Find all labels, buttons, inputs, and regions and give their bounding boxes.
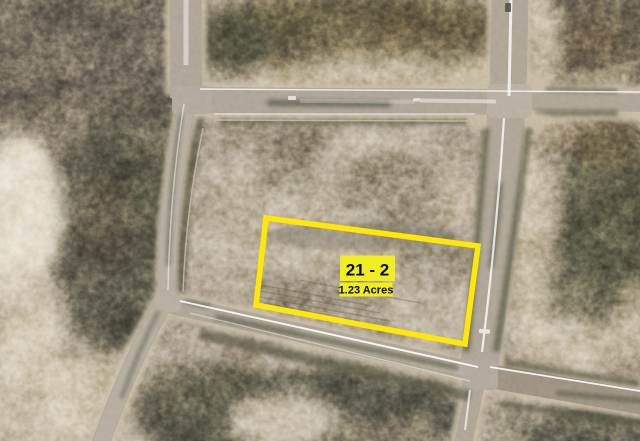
svg-text:1.23 Acres: 1.23 Acres bbox=[339, 285, 394, 297]
svg-text:21 - 2: 21 - 2 bbox=[346, 261, 389, 280]
